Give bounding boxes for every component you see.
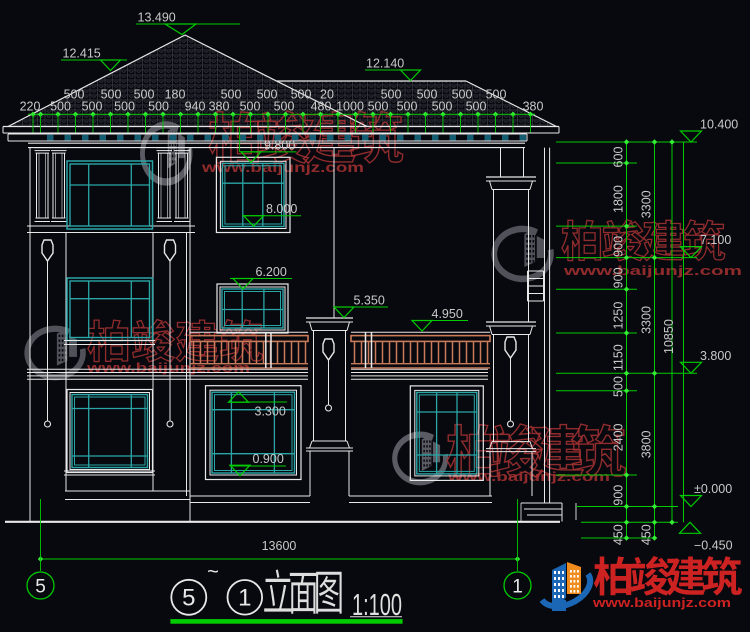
svg-text:600: 600: [612, 147, 626, 168]
svg-text:10.400: 10.400: [700, 118, 738, 132]
svg-text:www.baijunjz.com: www.baijunjz.com: [592, 595, 731, 610]
svg-text:500: 500: [82, 100, 103, 114]
svg-text:220: 220: [20, 100, 41, 114]
svg-text:1800: 1800: [612, 185, 626, 213]
svg-text:500: 500: [101, 88, 122, 102]
svg-text:3300: 3300: [640, 190, 654, 218]
svg-text:12.140: 12.140: [366, 57, 404, 71]
svg-text:500: 500: [257, 88, 278, 102]
svg-text:1: 1: [512, 577, 523, 598]
svg-text:380: 380: [523, 100, 544, 114]
svg-text:500: 500: [114, 100, 135, 114]
svg-text:500: 500: [452, 88, 473, 102]
svg-text:0.900: 0.900: [253, 452, 284, 466]
svg-text:500: 500: [50, 100, 71, 114]
svg-text:5: 5: [182, 585, 195, 612]
svg-text:900: 900: [612, 485, 626, 506]
svg-text:3.800: 3.800: [700, 349, 731, 363]
svg-text:500: 500: [432, 100, 453, 114]
svg-text:5: 5: [35, 577, 46, 598]
svg-text:−0.450: −0.450: [694, 538, 733, 552]
svg-text:12.415: 12.415: [63, 47, 101, 61]
svg-text:500: 500: [486, 88, 507, 102]
svg-text:1: 1: [238, 585, 251, 612]
svg-text:940: 940: [185, 100, 206, 114]
svg-text:900: 900: [612, 267, 626, 288]
svg-text:500: 500: [466, 100, 487, 114]
svg-text:3800: 3800: [640, 430, 654, 458]
svg-text:~: ~: [207, 561, 219, 583]
svg-text:±0.000: ±0.000: [694, 482, 732, 496]
svg-text:6.200: 6.200: [256, 265, 287, 279]
svg-text:5.350: 5.350: [354, 294, 385, 308]
svg-text:500: 500: [368, 100, 389, 114]
svg-text:500: 500: [240, 100, 261, 114]
svg-text:3300: 3300: [640, 306, 654, 334]
svg-text:450: 450: [640, 524, 654, 545]
svg-text:1150: 1150: [612, 344, 626, 371]
svg-text:10850: 10850: [662, 319, 676, 354]
svg-text:450: 450: [612, 524, 626, 545]
svg-text:1250: 1250: [612, 302, 626, 330]
svg-text:8.000: 8.000: [266, 202, 297, 216]
svg-text:500: 500: [274, 100, 295, 114]
svg-text:480: 480: [311, 100, 332, 114]
svg-text:380: 380: [209, 100, 230, 114]
svg-text:500: 500: [134, 88, 155, 102]
svg-text:500: 500: [64, 88, 85, 102]
svg-text:4.950: 4.950: [432, 307, 463, 321]
svg-text:500: 500: [612, 376, 626, 397]
svg-text:20: 20: [320, 88, 334, 102]
svg-text:500: 500: [381, 88, 402, 102]
svg-text:900: 900: [612, 236, 626, 257]
svg-text:500: 500: [291, 88, 312, 102]
svg-text:3.300: 3.300: [255, 405, 286, 419]
svg-text:500: 500: [148, 100, 169, 114]
svg-text:2400: 2400: [612, 423, 626, 451]
svg-text:9.800: 9.800: [264, 138, 295, 152]
svg-text:500: 500: [397, 100, 418, 114]
svg-text:500: 500: [417, 88, 438, 102]
svg-text:500: 500: [221, 88, 242, 102]
svg-text:1000: 1000: [336, 100, 364, 114]
svg-text:13.490: 13.490: [138, 11, 176, 25]
svg-text:www.baijunjz.com: www.baijunjz.com: [562, 263, 742, 278]
svg-text:1:100: 1:100: [352, 587, 402, 622]
svg-text:13600: 13600: [262, 539, 297, 553]
svg-text:180: 180: [165, 88, 186, 102]
svg-text:7.100: 7.100: [700, 233, 731, 247]
